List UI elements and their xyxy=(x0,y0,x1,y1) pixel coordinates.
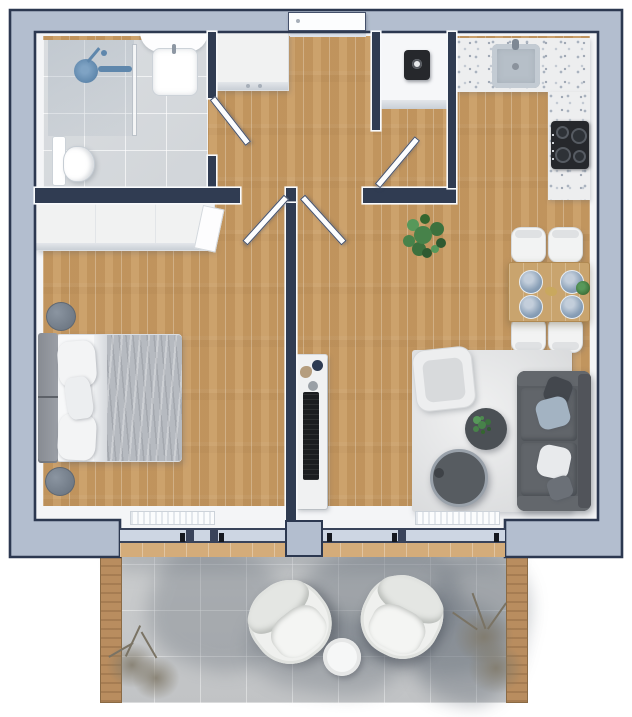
window-hardware xyxy=(180,533,185,542)
wall-bathroom-right-upper xyxy=(208,32,216,98)
window-hardware xyxy=(494,533,499,542)
window-hardware xyxy=(327,533,332,542)
wall-closet-left xyxy=(372,32,380,130)
floor-plan xyxy=(0,0,632,717)
entrance-door-handle xyxy=(296,19,300,23)
exterior-walls xyxy=(0,0,632,717)
wall-bedroom-living-divider xyxy=(286,203,296,528)
window-hardware xyxy=(219,533,224,542)
exterior-wall-band xyxy=(10,10,622,557)
window-hardware xyxy=(392,533,397,542)
wall-closet-bottom xyxy=(363,188,456,203)
window-pillar xyxy=(285,520,323,557)
wall-closet-kitchen xyxy=(448,32,456,188)
wall-bathroom-bedroom xyxy=(35,188,240,203)
